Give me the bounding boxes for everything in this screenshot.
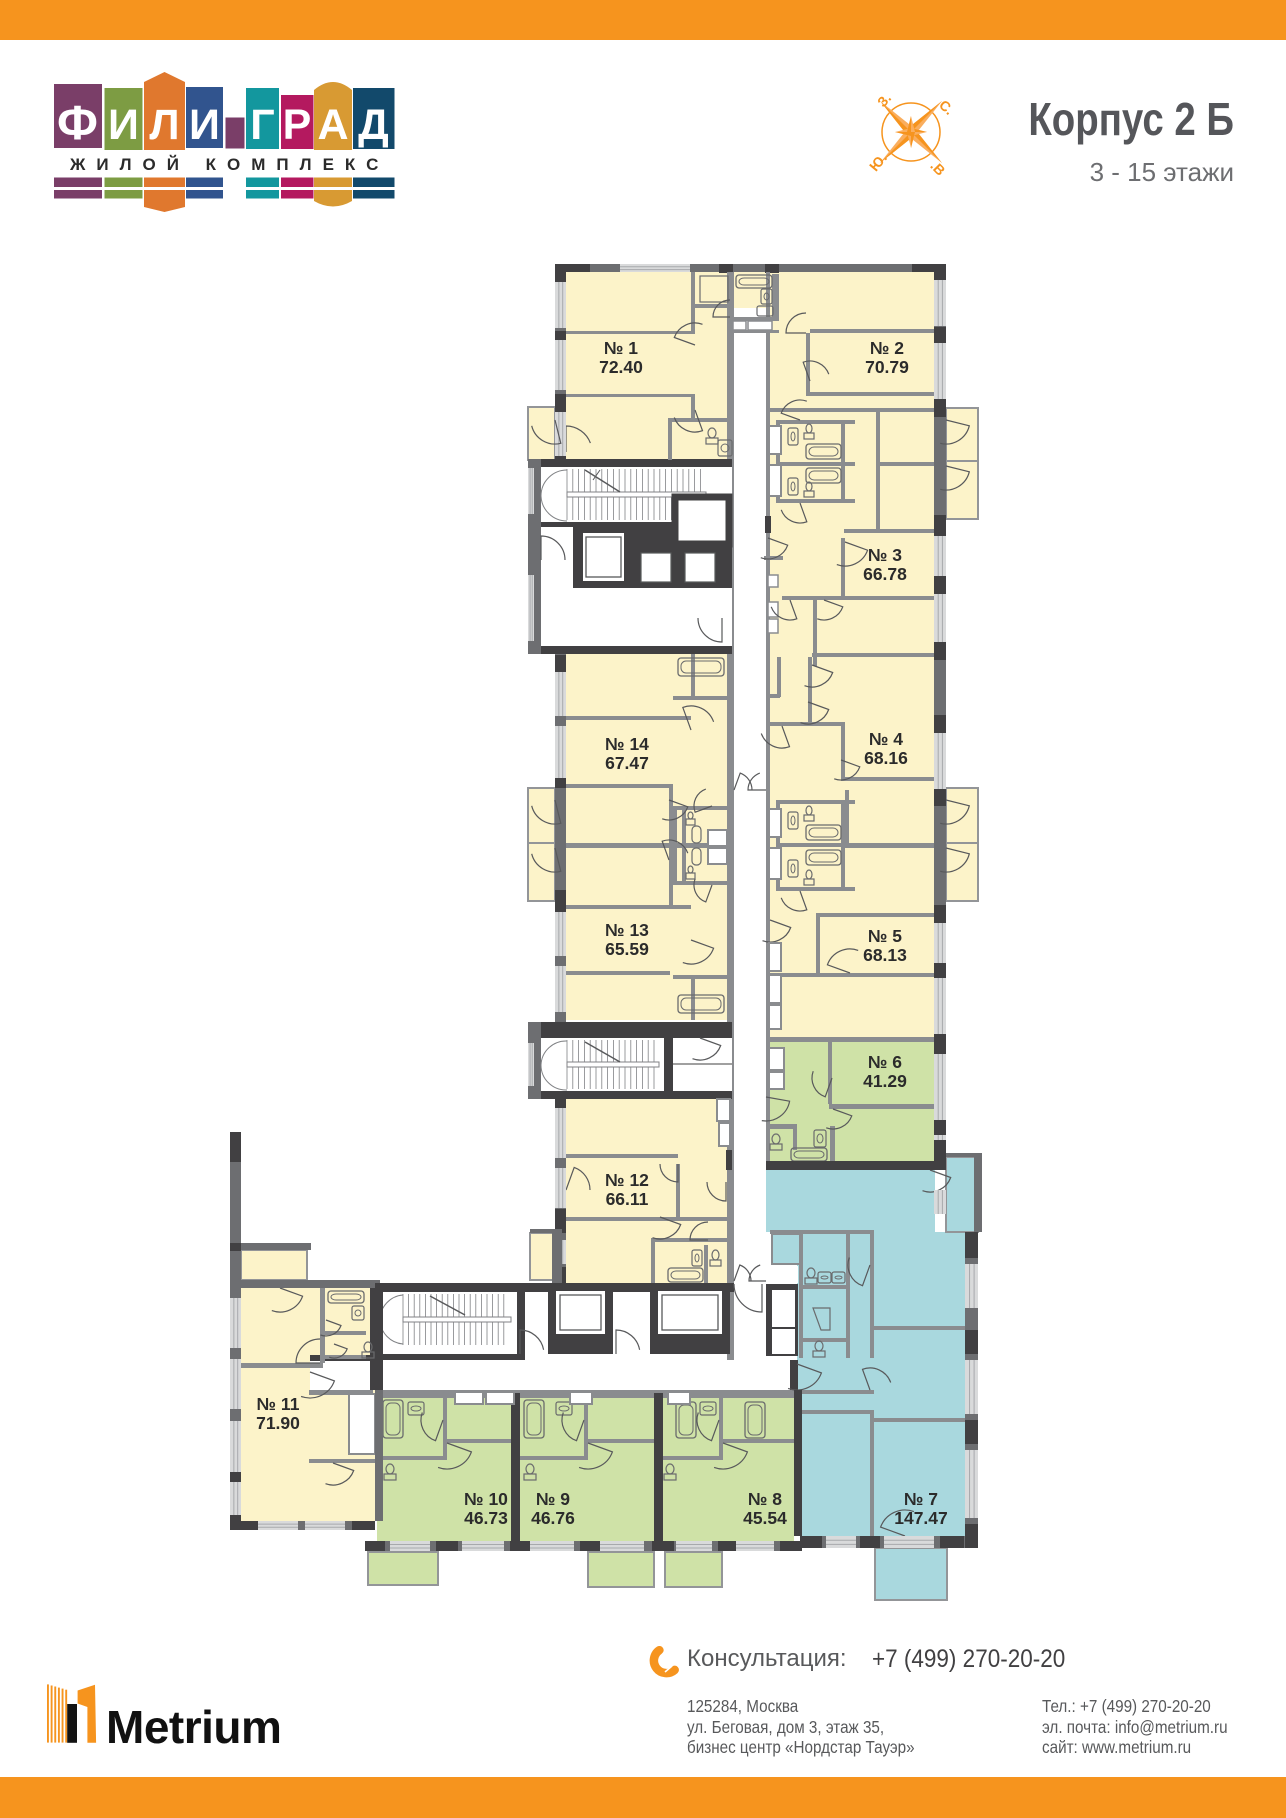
svg-text:67.47: 67.47 <box>605 753 649 773</box>
svg-text:.В: .В <box>927 157 948 178</box>
svg-text:45.54: 45.54 <box>743 1508 787 1528</box>
svg-text:№ 5: № 5 <box>868 926 902 946</box>
svg-text:№ 2: № 2 <box>870 338 904 358</box>
svg-text:И: И <box>108 101 139 149</box>
svg-text:№ 13: № 13 <box>605 920 649 940</box>
svg-text:№ 12: № 12 <box>605 1170 649 1190</box>
svg-text:ЖИЛОЙ КОМПЛЕКС: ЖИЛОЙ КОМПЛЕКС <box>69 155 389 174</box>
svg-text:147.47: 147.47 <box>894 1508 948 1528</box>
svg-text:№ 8: № 8 <box>748 1489 782 1509</box>
svg-text:71.90: 71.90 <box>256 1413 300 1433</box>
svg-text:№ 3: № 3 <box>868 545 902 565</box>
svg-text:68.16: 68.16 <box>864 748 908 768</box>
svg-text:Ю.: Ю. <box>866 150 890 174</box>
svg-text:№ 7: № 7 <box>904 1489 938 1509</box>
svg-text:№ 9: № 9 <box>536 1489 570 1509</box>
svg-text:№ 6: № 6 <box>868 1052 902 1072</box>
svg-text:З.: З. <box>874 90 894 110</box>
svg-text:68.13: 68.13 <box>863 945 907 965</box>
svg-text:№ 14: № 14 <box>605 734 649 754</box>
svg-text:Р: Р <box>283 101 312 149</box>
svg-text:И: И <box>189 101 220 149</box>
svg-text:72.40: 72.40 <box>599 357 643 377</box>
svg-text:70.79: 70.79 <box>865 357 909 377</box>
svg-text:66.11: 66.11 <box>606 1189 649 1209</box>
svg-text:№ 1: № 1 <box>604 338 638 358</box>
svg-text:Ф: Ф <box>57 97 98 150</box>
svg-text:№ 11: № 11 <box>257 1394 300 1414</box>
svg-text:№ 4: № 4 <box>869 729 903 749</box>
svg-text:С.: С. <box>936 97 957 118</box>
svg-text:46.73: 46.73 <box>464 1508 508 1528</box>
svg-text:Д: Д <box>358 101 389 149</box>
svg-text:66.78: 66.78 <box>863 564 907 584</box>
svg-text:Г: Г <box>250 101 274 149</box>
svg-text:Metrium: Metrium <box>106 1701 281 1753</box>
svg-text:А: А <box>317 101 348 149</box>
svg-text:46.76: 46.76 <box>531 1508 575 1528</box>
svg-text:Л: Л <box>149 101 179 149</box>
svg-text:41.29: 41.29 <box>863 1071 907 1091</box>
svg-text:№ 10: № 10 <box>464 1489 508 1509</box>
svg-text:65.59: 65.59 <box>605 939 649 959</box>
